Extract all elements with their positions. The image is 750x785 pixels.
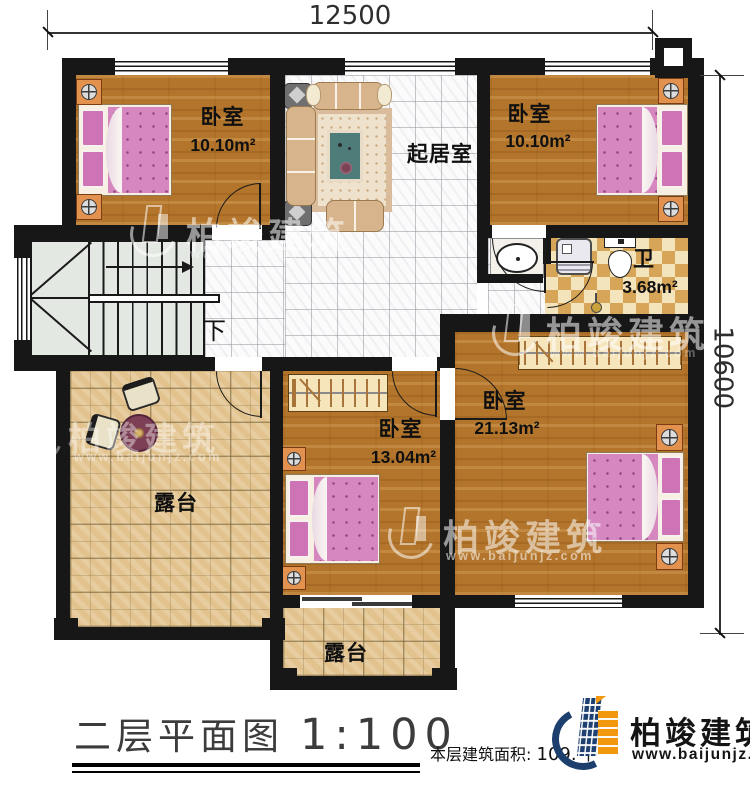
side-table-inlay — [289, 204, 306, 221]
bed-pillow — [288, 520, 310, 558]
wall-terrace-right — [270, 357, 283, 690]
washer-dial — [562, 244, 572, 254]
plan-title-text: 二层平面图 — [74, 715, 284, 758]
bed-pillow — [660, 456, 682, 495]
wall-vestibule-left — [477, 238, 488, 277]
lamp-icon — [663, 83, 679, 99]
brand-logo-icon — [552, 696, 628, 780]
door-leaf — [547, 261, 594, 263]
brand-url: www.baijunjz.com — [632, 746, 750, 764]
table-flower — [339, 161, 353, 175]
wall-terrace-bottom — [56, 627, 285, 640]
nightstand — [658, 78, 684, 104]
window-bedroom-right — [515, 595, 622, 608]
wall-terrace-bottom2 — [283, 676, 440, 690]
sofa-cushion — [306, 84, 321, 106]
door-leaf — [544, 238, 546, 293]
door-opening — [392, 357, 437, 371]
table-dot — [348, 147, 351, 150]
door-leaf — [259, 183, 261, 229]
brand-logo: 柏竣建筑 www.baijunjz.com — [552, 696, 748, 782]
toilet-button — [618, 239, 624, 244]
plan-title: 二层平面图1:100 — [74, 706, 459, 760]
floor-area-label: 本层建筑面积: — [430, 745, 531, 764]
dim-height-label: 10600 — [708, 326, 737, 386]
bed-pillow — [81, 150, 105, 188]
room-area-bedroom-top-left: 10.10m² — [168, 136, 278, 155]
nightstand — [282, 566, 306, 590]
stair-direction-line — [106, 266, 184, 268]
door-leaf — [260, 371, 262, 418]
lamp-icon — [661, 548, 678, 565]
stair-down-label: 下 — [198, 318, 230, 344]
lamp-icon — [663, 201, 679, 217]
dim-line-top — [47, 32, 653, 34]
terrace-post — [432, 668, 457, 690]
stair-direction-arrowhead — [182, 261, 194, 273]
title-underline-thin — [72, 771, 420, 773]
terrace-table — [120, 414, 158, 452]
nightstand — [656, 543, 683, 570]
door-opening — [215, 357, 262, 371]
lamp-icon — [287, 571, 301, 585]
room-area-bedroom-right: 21.13m² — [458, 419, 556, 438]
room-label-bedroom-right: 卧室 — [462, 390, 547, 413]
terrace-post — [54, 618, 78, 640]
window-bedroom-top-right — [545, 58, 650, 75]
floor-drain-stem — [595, 293, 597, 302]
room-label-terrace-left: 露台 — [140, 492, 212, 515]
room-area-bedroom-top-right: 10.10m² — [488, 132, 588, 151]
sofa-top — [312, 82, 384, 110]
title-underline-thick — [72, 763, 420, 767]
nightstand — [282, 447, 306, 471]
nightstand — [76, 194, 102, 220]
stair-landing-midline — [31, 297, 88, 299]
nightstand — [656, 424, 683, 451]
room-label-bathroom: 卫 — [626, 248, 662, 271]
wall-terrace-left — [56, 357, 70, 640]
stair-flight-lower — [88, 303, 203, 355]
nightstand — [658, 196, 684, 222]
lamp-icon — [81, 199, 97, 215]
nightstand — [76, 79, 102, 105]
room-label-living: 起居室 — [395, 143, 485, 166]
bed-pillow — [288, 479, 310, 517]
room-label-bedroom-mid: 卧室 — [358, 418, 443, 441]
side-table-inlay — [289, 87, 306, 104]
lamp-icon — [81, 84, 97, 100]
door-opening — [492, 225, 546, 238]
floor-plan-canvas: 下 — [0, 0, 750, 785]
bed-pillow — [660, 109, 684, 147]
lamp-icon — [661, 429, 678, 446]
coffee-table — [327, 130, 363, 182]
room-area-bathroom: 3.68m² — [608, 278, 692, 297]
logo-flag — [596, 696, 606, 704]
floor-drain — [591, 302, 602, 313]
dim-width-label: 12500 — [290, 2, 410, 31]
wall-left-upper — [62, 58, 76, 240]
door-opening — [440, 368, 455, 420]
chimney-flue — [664, 48, 683, 66]
sofa-cushion — [377, 84, 392, 106]
wall-bathroom-bottom — [455, 314, 704, 332]
window-stairwell — [14, 258, 30, 340]
bed-pillow — [660, 150, 684, 188]
sliding-door-panel — [352, 602, 412, 606]
window-bedroom-top-left — [115, 58, 228, 75]
bed-pillow — [81, 109, 105, 147]
room-label-bedroom-top-right: 卧室 — [487, 103, 572, 126]
table-dot — [338, 143, 342, 147]
sofa-left — [286, 106, 316, 206]
logo-tower-orange — [598, 710, 618, 754]
wall-right-outer — [688, 58, 704, 608]
terrace-post — [272, 668, 297, 690]
wardrobe — [288, 374, 388, 412]
loveseat-bottom — [326, 200, 384, 232]
table-plant — [133, 427, 145, 439]
window-living-room — [345, 58, 455, 75]
room-area-bedroom-mid: 13.04m² — [356, 448, 451, 467]
door-leaf — [435, 371, 437, 417]
bed-pillow — [660, 498, 682, 537]
stair-handrail — [88, 294, 220, 303]
room-label-terrace-bottom: 露台 — [310, 642, 382, 665]
room-label-bedroom-top-left: 卧室 — [180, 106, 265, 129]
sliding-door-panel — [302, 597, 362, 601]
lamp-icon — [287, 452, 301, 466]
